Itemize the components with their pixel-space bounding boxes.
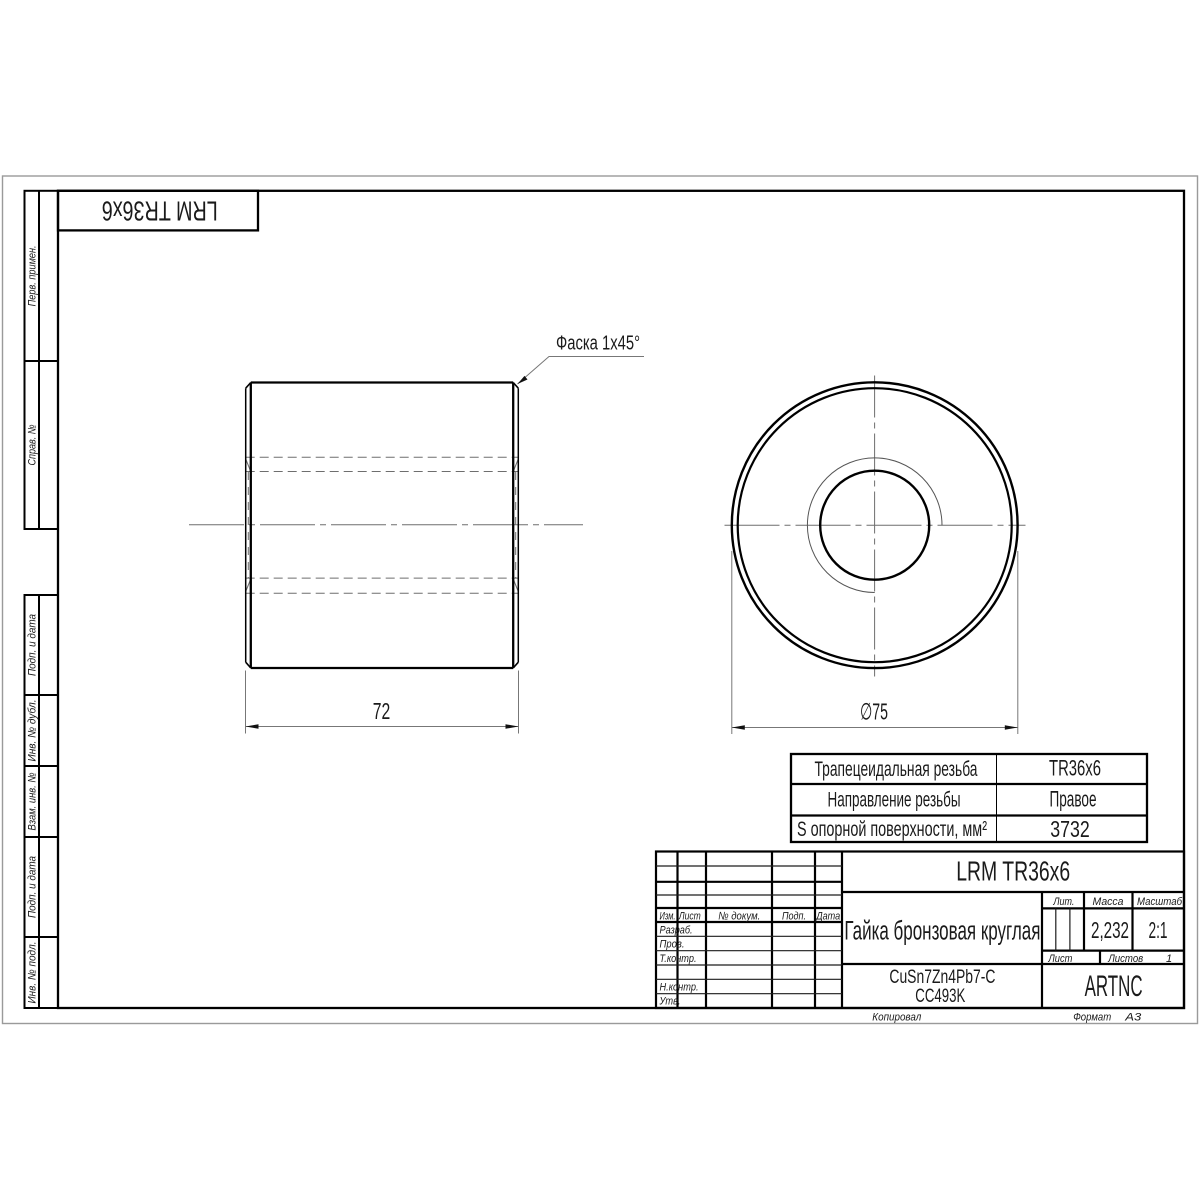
svg-text:S опорной поверхности, мм²: S опорной поверхности, мм² [797,818,987,841]
svg-text:№ докум.: № докум. [718,910,760,922]
svg-text:Лист: Лист [678,910,701,922]
svg-text:Пров.: Пров. [660,939,685,951]
svg-text:Лист: Лист [1048,953,1073,965]
svg-text:3732: 3732 [1050,816,1090,842]
svg-text:∅75: ∅75 [860,699,888,725]
svg-text:Подп. и дата: Подп. и дата [27,614,39,676]
svg-text:Н.контр.: Н.контр. [660,982,699,994]
svg-text:Лит.: Лит. [1053,896,1075,908]
svg-text:Дата: Дата [815,910,841,922]
svg-text:72: 72 [373,698,391,724]
svg-text:Масштаб: Масштаб [1137,896,1183,908]
svg-text:Перв. примен.: Перв. примен. [27,245,39,306]
svg-text:Т.контр.: Т.контр. [660,953,697,965]
svg-text:Справ. №: Справ. № [27,424,39,465]
svg-text:Инв. № дубл.: Инв. № дубл. [27,700,39,762]
svg-text:Утв.: Утв. [659,996,681,1008]
svg-text:Правое: Правое [1050,787,1097,812]
svg-text:Трапецеидальная резьба: Трапецеидальная резьба [815,758,978,781]
svg-text:TR36x6: TR36x6 [1049,756,1101,781]
svg-text:Подп.: Подп. [782,910,806,922]
svg-text:LRM TR36x6: LRM TR36x6 [102,196,218,227]
svg-text:Подп. и дата: Подп. и дата [27,856,39,918]
svg-text:Направление резьбы: Направление резьбы [828,789,961,812]
svg-text:Копировал: Копировал [872,1012,921,1024]
svg-text:Разраб.: Разраб. [660,924,693,936]
svg-text:LRM TR36x6: LRM TR36x6 [956,856,1070,887]
svg-text:ARTNC: ARTNC [1085,970,1143,1003]
svg-text:Изм.: Изм. [660,910,676,922]
svg-text:Гайка бронзовая круглая: Гайка бронзовая круглая [844,916,1040,946]
svg-text:Взам. инв. №: Взам. инв. № [27,772,39,830]
svg-text:Инв. № подл.: Инв. № подл. [27,942,39,1004]
svg-text:CC493K: CC493K [915,985,965,1007]
svg-text:2:1: 2:1 [1149,917,1168,943]
svg-text:Фаска 1x45°: Фаска 1x45° [556,333,640,355]
svg-text:Масса: Масса [1093,896,1124,908]
svg-text:A3: A3 [1124,1012,1142,1024]
svg-text:2,232: 2,232 [1091,917,1129,943]
svg-text:Листов: Листов [1107,953,1143,965]
svg-text:Формат: Формат [1073,1012,1111,1024]
svg-text:1: 1 [1166,953,1172,965]
